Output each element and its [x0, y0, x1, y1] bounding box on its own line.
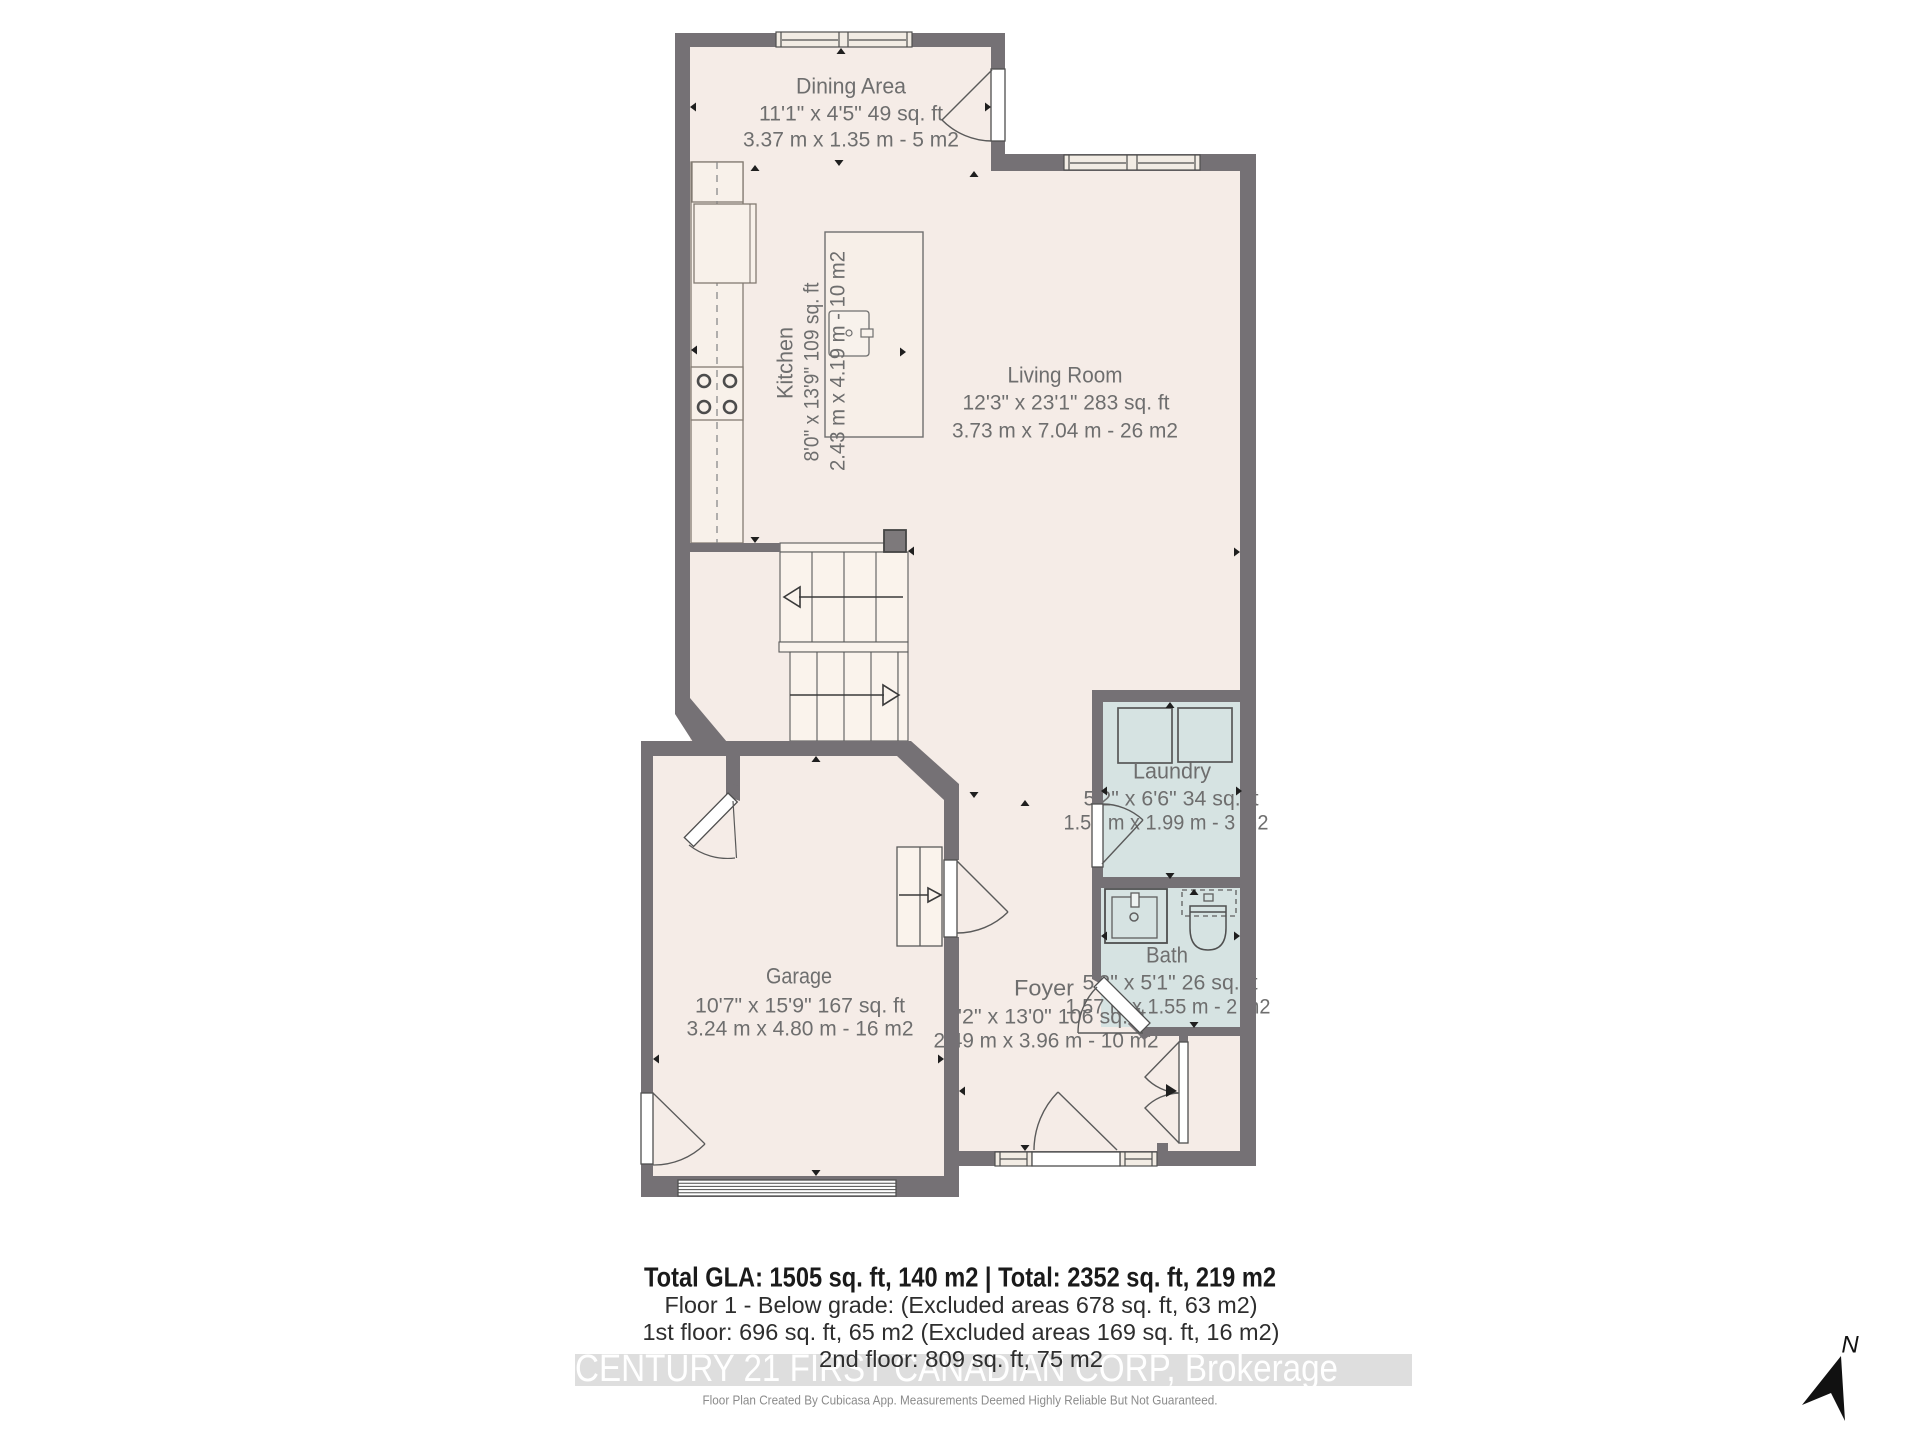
svg-text:5'2" x 6'6" 34 sq. ft: 5'2" x 6'6" 34 sq. ft — [1084, 788, 1259, 811]
svg-text:Garage: Garage — [766, 964, 832, 989]
svg-text:Bath: Bath — [1146, 943, 1188, 968]
svg-text:3.73 m x 7.04 m - 26 m2: 3.73 m x 7.04 m - 26 m2 — [952, 420, 1178, 443]
svg-text:12'3" x 23'1" 283 sq. ft: 12'3" x 23'1" 283 sq. ft — [963, 392, 1170, 415]
svg-text:Floor Plan Created By Cubicasa: Floor Plan Created By Cubicasa App. Meas… — [703, 1393, 1218, 1408]
svg-text:3.37 m x 1.35 m - 5 m2: 3.37 m x 1.35 m - 5 m2 — [743, 129, 959, 152]
svg-text:Kitchen: Kitchen — [773, 327, 798, 399]
svg-text:2.43 m x 4.19 m - 10 m2: 2.43 m x 4.19 m - 10 m2 — [827, 251, 850, 471]
svg-text:Laundry: Laundry — [1133, 759, 1211, 784]
svg-text:Foyer: Foyer — [1014, 976, 1074, 1001]
svg-text:Total GLA: 1505 sq. ft, 140 m2: Total GLA: 1505 sq. ft, 140 m2 | Total: … — [644, 1262, 1276, 1293]
svg-text:10'7" x 15'9" 167 sq. ft: 10'7" x 15'9" 167 sq. ft — [695, 995, 905, 1018]
svg-text:Living Room: Living Room — [1008, 363, 1123, 388]
svg-text:8'0" x 13'9" 109 sq. ft: 8'0" x 13'9" 109 sq. ft — [801, 282, 824, 461]
svg-text:3.24 m x 4.80 m - 16 m2: 3.24 m x 4.80 m - 16 m2 — [687, 1018, 914, 1041]
svg-text:11'1" x 4'5" 49 sq. ft: 11'1" x 4'5" 49 sq. ft — [759, 103, 943, 126]
svg-text:N: N — [1841, 1332, 1859, 1359]
svg-text:1st floor: 696 sq. ft, 65 m2 (: 1st floor: 696 sq. ft, 65 m2 (Excluded a… — [643, 1319, 1280, 1345]
svg-text:Floor 1 - Below grade: (Exclud: Floor 1 - Below grade: (Excluded areas 6… — [665, 1292, 1258, 1318]
svg-text:Dining Area: Dining Area — [796, 74, 907, 99]
svg-text:2nd floor: 809 sq. ft, 75 m2: 2nd floor: 809 sq. ft, 75 m2 — [819, 1346, 1103, 1372]
